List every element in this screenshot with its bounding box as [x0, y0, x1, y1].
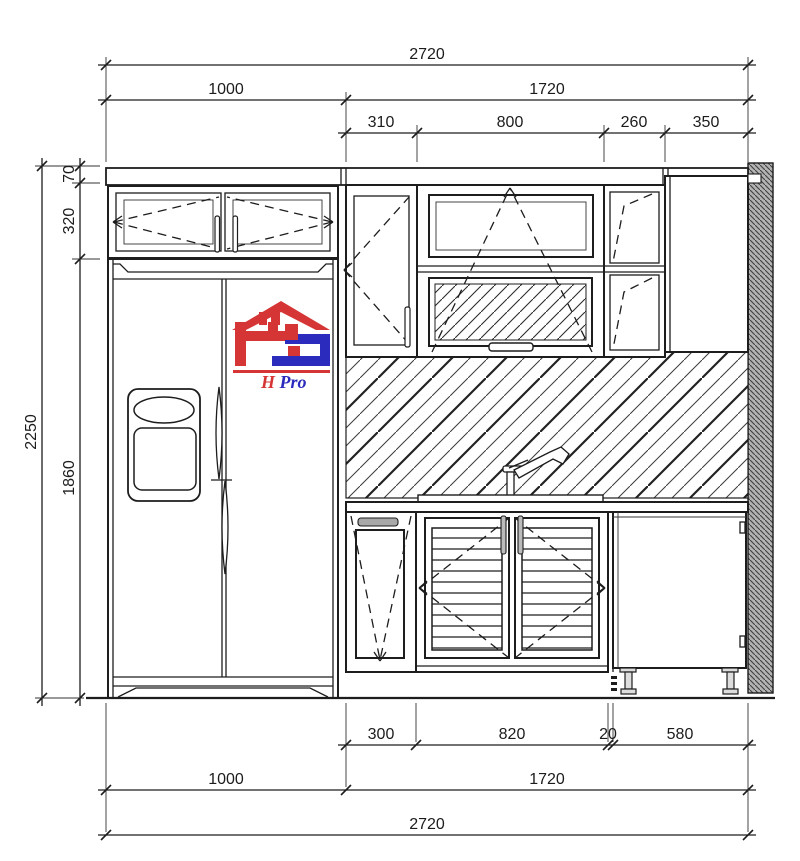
upper-cabinet-260 — [604, 185, 665, 357]
dim-top-seg-260: 260 — [621, 114, 648, 131]
base-cabinet-580 — [611, 512, 746, 694]
dim-top-left: 1000 — [208, 81, 244, 98]
cabinet-leg — [722, 668, 738, 694]
dim-top-overall: 2720 — [409, 46, 445, 63]
upper-cabinet-310 — [344, 185, 417, 357]
drawing-svg: H Pro — [0, 0, 800, 861]
wall-hatch — [748, 163, 773, 693]
dim-top-seg-800: 800 — [497, 114, 524, 131]
dim-bottom-seg-20: 20 — [599, 726, 617, 743]
water-dispenser — [128, 389, 200, 501]
door-handle — [215, 216, 220, 252]
dimensions-bottom: 300 820 20 580 1000 1720 2720 — [98, 703, 756, 840]
door-handle — [233, 216, 238, 252]
door-handle — [489, 343, 533, 351]
dim-top-right: 1720 — [529, 81, 565, 98]
dimensions-top: 2720 1000 1720 310 800 260 350 — [98, 46, 756, 162]
fridge-top-cabinet — [108, 186, 338, 258]
tall-cabinet-350 — [665, 174, 761, 352]
door-handle — [518, 516, 523, 554]
refrigerator: H Pro — [108, 259, 338, 698]
logo-text-rest: Pro — [279, 372, 307, 392]
sink-rim — [418, 495, 603, 502]
dim-bottom-overall: 2720 — [409, 816, 445, 833]
cabinet-leg — [620, 668, 636, 694]
dim-left-total: 2250 — [23, 414, 40, 450]
dim-bottom-seg-300: 300 — [368, 726, 395, 743]
door-handle — [405, 307, 410, 347]
dim-bottom-seg-580: 580 — [667, 726, 694, 743]
base-cabinet-820-louvered — [416, 512, 608, 672]
upper-cabinet-800 — [417, 185, 604, 357]
dim-left-seg-70: 70 — [61, 165, 78, 183]
dim-top-seg-310: 310 — [368, 114, 395, 131]
backsplash-hatch — [346, 352, 748, 498]
logo-text-h: H — [260, 372, 276, 392]
dim-left-seg-1860: 1860 — [61, 460, 78, 496]
dimensions-left: 2250 70 320 1860 — [23, 158, 100, 706]
door-handle — [501, 516, 506, 554]
dim-top-seg-350: 350 — [693, 114, 720, 131]
base-cabinet-300 — [346, 512, 416, 672]
dim-bottom-seg-820: 820 — [499, 726, 526, 743]
dim-bottom-right: 1720 — [529, 771, 565, 788]
kitchen-elevation-drawing: H Pro — [0, 0, 800, 861]
dim-bottom-left: 1000 — [208, 771, 244, 788]
cabinet-wall-notch — [748, 174, 761, 183]
soffit-strip — [106, 168, 748, 185]
dim-left-seg-320: 320 — [61, 208, 78, 235]
door-handle — [358, 518, 398, 526]
